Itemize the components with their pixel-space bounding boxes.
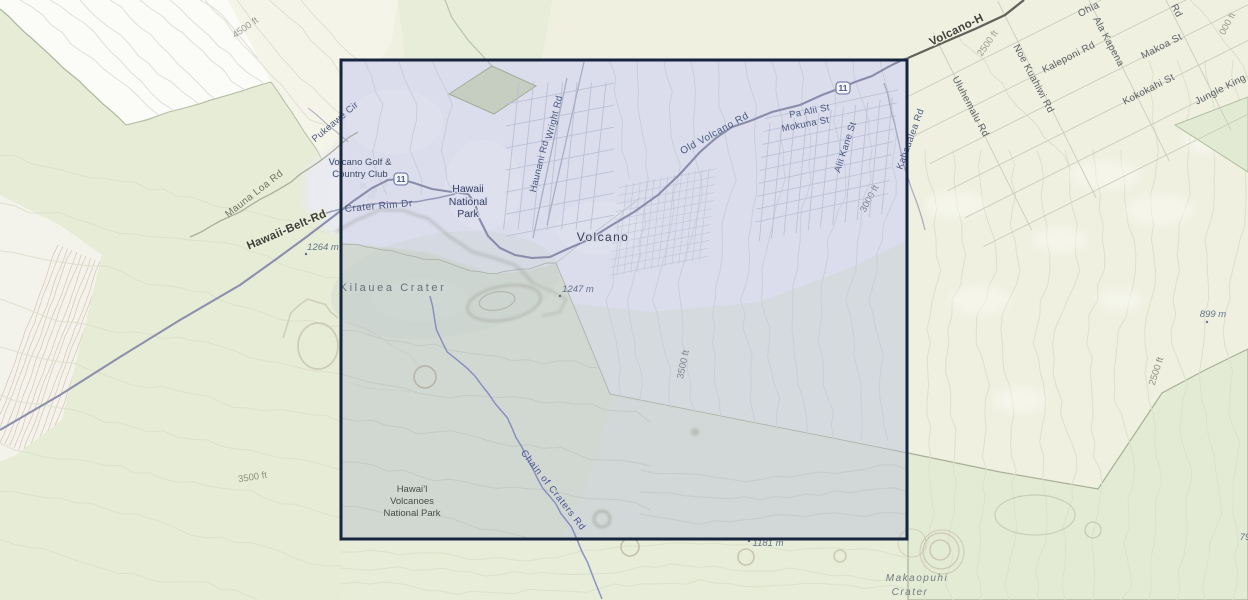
svg-text:Makaopuhi: Makaopuhi [886,573,948,584]
svg-text:Crater: Crater [892,587,929,598]
svg-text:899 m: 899 m [1200,309,1226,320]
svg-text:1264 m: 1264 m [307,242,339,253]
svg-text:79: 79 [1240,532,1248,543]
